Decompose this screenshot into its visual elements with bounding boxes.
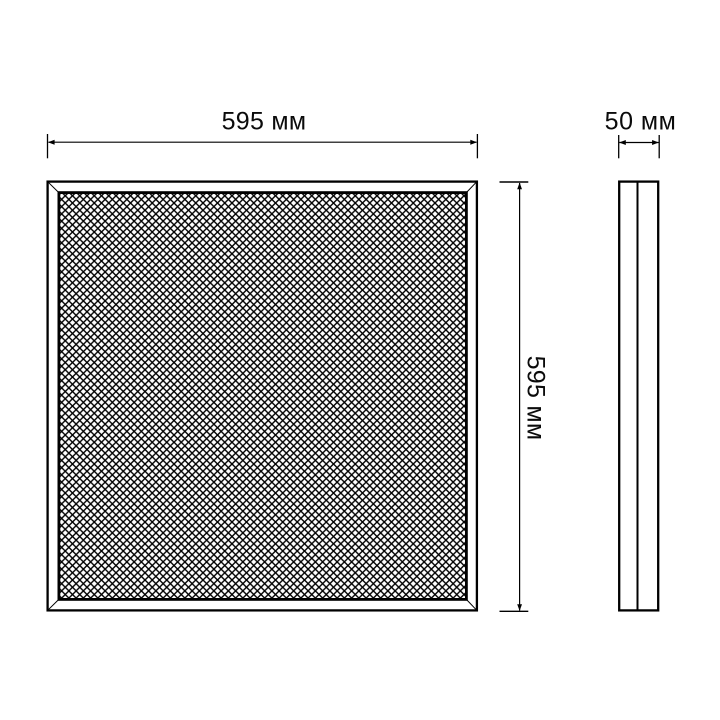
svg-text:595 мм: 595 мм (222, 108, 307, 136)
svg-text:595 мм: 595 мм (522, 356, 550, 441)
svg-text:50 мм: 50 мм (605, 108, 677, 136)
